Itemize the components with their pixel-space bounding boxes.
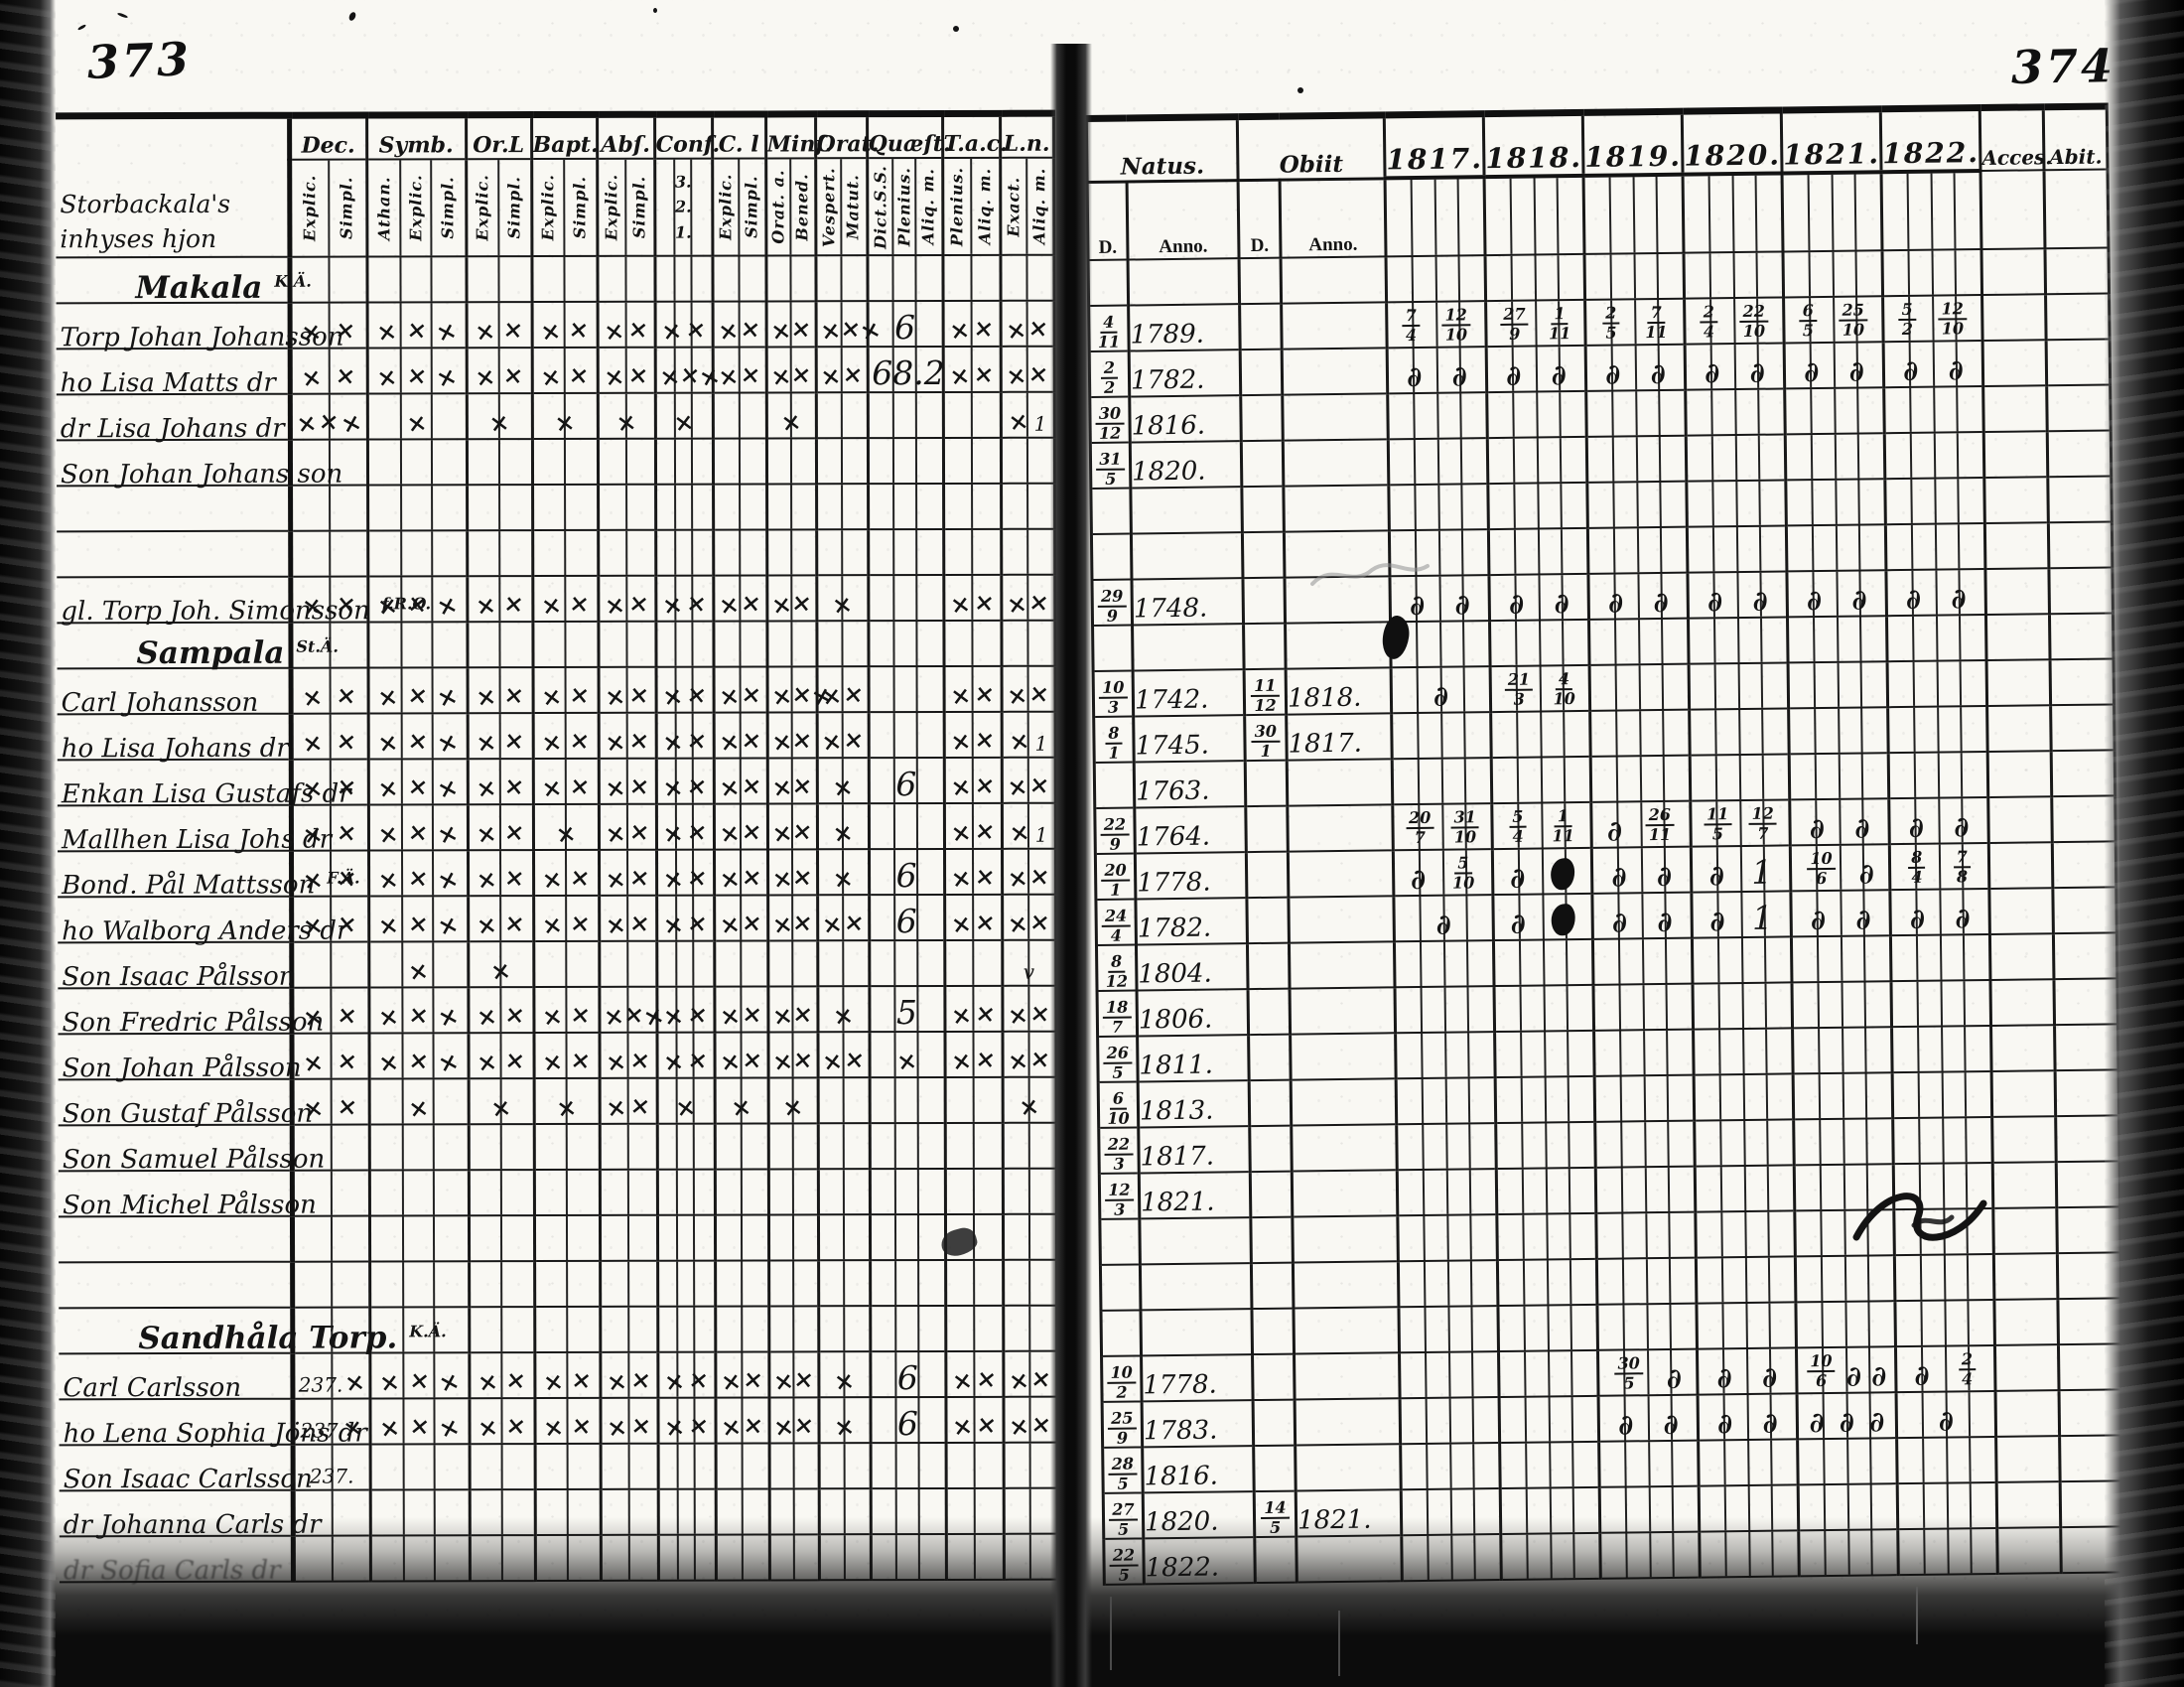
person-name: gl. Torp Joh. Simonssonf.R.O. (57, 595, 288, 627)
examination-mark-cell: ×× (714, 895, 767, 940)
examination-mark-cell: ×× (656, 667, 714, 713)
paper-speck (117, 12, 128, 19)
x-mark: × (301, 364, 324, 391)
communion-mark-cell (1785, 433, 1885, 480)
examination-mark-cell (713, 438, 766, 484)
communion-mark-cell: ∂∂ (1588, 573, 1689, 620)
examination-mark-cell (367, 485, 467, 530)
x-mark: × (791, 590, 813, 616)
examination-mark-cell: × (367, 393, 467, 439)
communion-mark-cell (1596, 1258, 1697, 1305)
examination-mark-cell: ××× (369, 1352, 469, 1398)
x-mark: × (376, 684, 399, 711)
examination-mark-cell: × (817, 758, 869, 803)
natus-day-cell (1100, 1264, 1141, 1310)
paper-speck (347, 11, 356, 22)
examination-mark-cell: ×× (944, 1032, 1002, 1077)
ditto-mark: ∂ (1653, 590, 1668, 615)
ledger-row: Bond. Pål MattssonF.Ä.××××××××××××××××××… (58, 849, 1055, 898)
examination-mark-cell: ×× (944, 986, 1002, 1032)
communion-mark-cell: ∂510 (1393, 849, 1493, 896)
x-mark: × (502, 317, 524, 343)
pen-flourish (1844, 1174, 2003, 1263)
x-mark: × (408, 1048, 430, 1073)
communion-mark-cell (1885, 523, 1985, 570)
ledger-row (57, 484, 1054, 532)
x-mark: × (539, 593, 562, 620)
communion-mark-cell (1491, 711, 1591, 758)
book-edge-left (0, 0, 56, 1687)
x-mark: × (376, 821, 399, 848)
x-mark: × (831, 820, 854, 847)
examination-mark-cell: × (368, 941, 468, 987)
communion-mark-cell (1885, 478, 1985, 524)
examination-mark-cell: ×× (533, 896, 599, 941)
communion-mark-cell: ∂ (1391, 666, 1491, 713)
x-mark: × (336, 820, 357, 846)
column-subheader: 3.2.1. (654, 159, 712, 256)
examination-mark-cell (815, 255, 867, 301)
communion-mark-cell (1488, 528, 1588, 575)
communion-mark-cell: 54111 (1492, 802, 1592, 849)
acces-cell (1981, 248, 2046, 295)
examination-mark-cell (868, 484, 943, 529)
examination-mark-cell (816, 392, 868, 438)
x-mark: × (793, 1366, 815, 1392)
x-mark: × (604, 913, 626, 939)
examination-mark-cell (870, 1123, 945, 1169)
obiit-day-cell (1246, 806, 1289, 853)
year-label: 1820. (1682, 110, 1782, 175)
communion-mark-cell (1394, 940, 1494, 987)
x-mark: × (974, 910, 996, 935)
x-mark: × (604, 730, 626, 757)
examination-mark-cell (868, 392, 943, 438)
natus-year-cell: 1764. (1135, 806, 1247, 853)
examination-mark-cell (765, 255, 815, 301)
examination-mark-cell (768, 1260, 818, 1306)
x-mark: × (718, 912, 741, 938)
examination-mark-cell (945, 1169, 1003, 1214)
x-mark: × (555, 1095, 578, 1122)
column-label: Or.L (466, 115, 531, 160)
examination-mark-cell: ×× (467, 348, 532, 393)
communion-mark-cell: ∂∂ (1685, 343, 1785, 389)
x-mark: × (743, 1367, 764, 1393)
obiit-day-cell (1253, 1354, 1296, 1401)
x-mark: × (376, 867, 399, 894)
x-mark: × (686, 728, 708, 754)
ditto-mark: ∂ (1869, 1409, 1884, 1434)
x-mark: × (628, 865, 650, 891)
book-edge-bottom (0, 1517, 2184, 1687)
name-cell: Son Isaac Carlsson (60, 1445, 293, 1491)
obiit-day-cell (1242, 532, 1285, 579)
obiit-year-cell (1281, 256, 1387, 303)
examination-mark-cell (818, 1169, 870, 1214)
examination-mark-cell (869, 666, 944, 712)
examination-mark-cell: ××× (655, 348, 713, 393)
examination-mark-cell: ×× (468, 850, 533, 896)
examination-mark-cell (943, 529, 1001, 575)
x-mark: × (407, 958, 430, 985)
person-name: ho Lena Sophia Jöns dr (60, 1419, 291, 1450)
examination-mark-cell (818, 1077, 870, 1123)
examination-mark-cell: ××× (290, 393, 367, 439)
examination-mark-cell: × (469, 1078, 534, 1124)
acces-cell (1989, 933, 2054, 980)
examination-mark-cell: ×× (944, 712, 1002, 758)
examination-mark-cell: ×× (1001, 575, 1054, 621)
acces-cell (1987, 751, 2052, 797)
ditto-mark: ∂ (1509, 591, 1524, 616)
anno-sublabel: Anno. (1280, 178, 1386, 257)
communion-mark-cell (1699, 1439, 1799, 1485)
x-mark: × (378, 1415, 401, 1442)
examination-mark-cell: ×× (290, 348, 367, 393)
x-mark: × (336, 683, 357, 709)
examination-mark-cell (1001, 529, 1054, 575)
name-cell: Son Samuel Pålsson (59, 1125, 292, 1172)
obiit-day-cell (1240, 304, 1283, 351)
acces-label: Acces. (1979, 107, 2044, 171)
acces-cell (1995, 1390, 2060, 1437)
examination-mark-cell: ×× (714, 803, 767, 849)
ditto-mark: ∂ (1707, 589, 1722, 614)
examination-mark-cell: ×× (599, 667, 656, 713)
acces-cell (1990, 979, 2055, 1026)
communion-mark-cell (1400, 1351, 1500, 1398)
communion-mark-cell (1791, 935, 1891, 982)
communion-mark-cell (1697, 1302, 1797, 1348)
examination-mark-cell: × (467, 393, 532, 439)
obiit-day-cell (1251, 1217, 1294, 1264)
person-name: Carl Carlsson (59, 1373, 290, 1404)
date-fraction: 81 (1105, 726, 1123, 762)
x-mark: × (687, 1048, 709, 1073)
x-mark: × (502, 362, 524, 388)
number-mark: 237. (299, 1375, 343, 1395)
x-mark: × (503, 682, 525, 708)
subcolumn-label: Aliq. m. (1031, 168, 1047, 244)
x-mark: × (553, 410, 576, 437)
natus-day-cell: 81 (1094, 716, 1135, 762)
x-mark: × (476, 1004, 498, 1031)
examination-mark-cell (942, 255, 1000, 301)
x-mark: × (377, 1369, 400, 1396)
x-mark: × (407, 911, 429, 936)
date-fraction: 812 (1105, 954, 1128, 990)
examination-mark-cell: ×× (767, 1032, 817, 1077)
x-mark: × (741, 728, 762, 754)
person-name: Son Samuel Pålsson (59, 1145, 290, 1176)
abit-label: Abit. (2043, 106, 2108, 170)
examination-mark-cell (598, 622, 655, 667)
examination-mark-cell: ×× (291, 1033, 368, 1078)
x-mark: × (628, 591, 650, 617)
name-cell: Carl Johansson (58, 668, 291, 715)
x-mark: × (661, 729, 684, 756)
examination-mark-cell: × (817, 986, 869, 1032)
communion-mark-cell (1785, 387, 1885, 434)
communion-mark-cell (1887, 660, 1987, 707)
examination-mark-cell (469, 1170, 534, 1215)
village-heading: SampalaSt.Ä. (57, 635, 288, 672)
examination-mark-cell: × (715, 1077, 768, 1123)
communion-mark-cell (1397, 1123, 1497, 1170)
examination-mark-cell: ×× (656, 804, 714, 850)
communion-mark-cell (1594, 1075, 1695, 1122)
subcolumn-label: Simpl. (572, 176, 588, 238)
x-mark: × (660, 318, 683, 345)
number-mark: 1 (1034, 414, 1047, 434)
x-mark: × (719, 1003, 742, 1030)
x-mark: × (950, 1049, 973, 1075)
person-name: Son Johan Pålsson (59, 1054, 290, 1084)
communion-mark-cell (1786, 524, 1886, 571)
x-mark: × (685, 317, 707, 343)
examination-mark-cell (290, 530, 367, 576)
x-mark: × (1006, 865, 1028, 892)
examination-mark-cell (291, 941, 368, 987)
ledger-row: dr Lisa Johans dr××××××××××1 (57, 392, 1054, 441)
x-mark: × (1006, 682, 1028, 709)
examination-mark-cell (600, 1124, 657, 1170)
name-cell: Son Johan Johans son (57, 440, 290, 487)
examination-mark-cell (598, 530, 655, 576)
x-mark: × (406, 362, 428, 388)
communion-mark-cell (1495, 1031, 1595, 1077)
acces-cell (1994, 1299, 2059, 1345)
examination-mark-cell (600, 1170, 657, 1215)
day-sublabel: D. (1238, 180, 1281, 259)
communion-mark-cell (1891, 980, 1991, 1027)
x-mark: × (568, 317, 590, 343)
subcolumn-label: Explic. (604, 174, 619, 240)
communion-mark-cell (1491, 757, 1591, 803)
communion-mark-cell: ∂∂ (1791, 890, 1891, 936)
x-mark: × (405, 410, 428, 437)
examination-mark-cell (944, 940, 1002, 986)
x-mark: × (606, 1415, 628, 1442)
date-fraction: 1112 (1251, 678, 1280, 714)
x-mark: × (950, 1368, 973, 1395)
date-fraction: 279 (1500, 307, 1529, 343)
x-mark: × (505, 1413, 527, 1439)
examination-mark-cell (367, 439, 467, 485)
examination-mark-cell (1003, 1214, 1056, 1260)
natus-year-cell (1133, 624, 1245, 670)
date-fraction: 259 (1108, 1411, 1137, 1447)
communion-mark-cell: ∂∂ (1486, 346, 1586, 392)
communion-mark-cell (1594, 1030, 1695, 1076)
examination-mark-cell (467, 530, 532, 576)
communion-mark-cell (1597, 1304, 1698, 1350)
natus-year-cell: 1778. (1142, 1354, 1254, 1401)
ditto-mark: ∂ (1667, 1366, 1682, 1391)
x-mark: × (976, 1412, 998, 1438)
x-mark: × (571, 1413, 593, 1439)
communion-mark-cell (1389, 484, 1489, 530)
x-mark: × (1028, 773, 1050, 798)
x-mark: × (568, 362, 590, 388)
examination-mark-cell: ×× (715, 1351, 768, 1397)
ditto-mark: ∂ (1709, 863, 1724, 888)
x-mark: × (569, 682, 591, 708)
x-mark: × (790, 316, 812, 342)
examination-mark-cell (467, 485, 532, 530)
x-mark: × (540, 913, 563, 939)
examination-mark-cell: ×× (714, 849, 767, 895)
examination-mark-cell (766, 529, 816, 575)
examination-mark-cell (599, 941, 656, 987)
faint-scribble (1306, 552, 1435, 596)
x-mark: × (489, 958, 512, 985)
column-label: Dec. (289, 115, 366, 160)
examination-mark-cell (369, 1215, 469, 1261)
examination-mark-cell (868, 621, 943, 666)
person-name: Son Michel Pålsson (59, 1191, 290, 1221)
ledger-row: Mallhen Lisa Johs dr××××××××××××××××××××… (58, 803, 1055, 852)
column-subheader: Orat. a.Bened. (765, 158, 815, 255)
examination-mark-cell: ×× (767, 986, 817, 1032)
examination-mark-cell (469, 1261, 534, 1307)
x-mark: × (948, 318, 971, 345)
year-subcolumns (1583, 175, 1684, 254)
x-mark: × (570, 1048, 592, 1073)
examination-mark-cell: ×× (599, 759, 656, 804)
communion-mark-cell (1499, 1350, 1599, 1397)
x-mark: × (974, 773, 996, 798)
ditto-mark: ∂ (1511, 911, 1526, 935)
obiit-day-cell (1248, 989, 1291, 1036)
conf-grade-label: 1. (675, 219, 692, 245)
communion-mark-cell (1589, 664, 1690, 711)
natus-day-cell (1093, 625, 1134, 670)
ditto-mark: ∂ (1657, 910, 1672, 934)
x-mark: × (831, 592, 854, 619)
examination-mark-cell (533, 941, 599, 987)
subcolumn-label: Explic. (302, 175, 318, 241)
communion-mark-cell (1789, 753, 1889, 799)
communion-mark-cell (1497, 1213, 1597, 1260)
name-cell: Son Gustaf Pålsson (59, 1079, 292, 1126)
x-mark: × (975, 1047, 997, 1072)
examination-mark-cell (715, 1123, 768, 1169)
x-mark: × (474, 593, 496, 620)
communion-mark-cell (1892, 1026, 1992, 1072)
date-fraction: 229 (1101, 817, 1130, 853)
examination-mark-cell: ×× (656, 850, 714, 896)
communion-mark-cell: ∂∂ (1688, 571, 1788, 618)
communion-mark-cell (1793, 1027, 1893, 1073)
x-mark: × (628, 819, 650, 845)
examination-mark-cell (366, 256, 466, 302)
page-number-left: 373 (86, 32, 193, 93)
examination-mark-cell (769, 1443, 819, 1488)
communion-mark-cell (1788, 616, 1888, 662)
examination-mark-cell: ××× (368, 850, 468, 896)
x-mark: × (504, 1002, 526, 1028)
x-mark: × (569, 865, 591, 891)
natus-day-cell: 223 (1099, 1127, 1140, 1173)
x-mark: × (376, 730, 399, 757)
natus-year-cell: 1811. (1138, 1035, 1250, 1081)
examination-mark-cell (870, 1260, 945, 1306)
ledger-row: Enkan Lisa Gustafs dr××××××××××××××××××6… (58, 758, 1055, 806)
ditto-mark: ∂ (1906, 587, 1921, 612)
communion-mark-cell (1590, 710, 1691, 757)
obiit-year-cell: 1817. (1287, 713, 1393, 760)
communion-mark-cell (1689, 662, 1789, 709)
examination-mark-cell: ×× (533, 667, 599, 713)
communion-mark-cell (1388, 392, 1488, 439)
x-mark: × (554, 821, 577, 848)
x-mark: × (1029, 1047, 1051, 1072)
year-label: 1818. (1483, 112, 1583, 177)
subcolumn-label: Matut. (845, 174, 861, 239)
ditto-mark: ∂ (1611, 864, 1626, 889)
x-mark: × (569, 773, 591, 799)
date-fraction: 2611 (1646, 807, 1675, 843)
obiit-day-cell (1243, 578, 1286, 625)
column-label: Conf. (654, 114, 712, 159)
x-mark: × (949, 912, 972, 938)
x-mark: × (793, 1412, 815, 1438)
x-mark: × (741, 591, 762, 617)
x-mark: × (407, 865, 429, 891)
examination-mark-cell (870, 1306, 945, 1351)
examination-mark-cell (945, 1306, 1003, 1351)
ditto-mark: ∂ (1809, 1410, 1824, 1435)
number-mark: 1 (1752, 904, 1773, 933)
x-mark: × (1027, 316, 1049, 342)
obiit-year-cell (1283, 439, 1389, 486)
communion-mark-cell (1587, 482, 1688, 528)
examination-mark-cell (598, 485, 655, 530)
examination-mark-cell (655, 439, 713, 485)
x-mark: × (662, 1049, 685, 1075)
ditto-mark: ∂ (1763, 1410, 1778, 1435)
subcolumn-label: Explic. (540, 174, 556, 240)
x-mark: × (658, 363, 681, 390)
x-mark: × (686, 819, 708, 845)
x-mark: × (976, 1366, 998, 1392)
x-mark: × (741, 682, 762, 708)
x-mark: × (477, 1369, 499, 1396)
ditto-mark: ∂ (1552, 362, 1567, 387)
x-mark: × (337, 1094, 358, 1120)
examination-mark-cell (766, 438, 816, 484)
ditto-mark: ∂ (1607, 818, 1622, 843)
x-mark: × (436, 1049, 462, 1077)
x-mark: × (505, 1367, 527, 1393)
examination-mark-cell: ×× (714, 1032, 767, 1077)
x-mark: × (686, 682, 708, 708)
x-mark: × (436, 912, 462, 940)
ledger-row: MakalaK.Ä. (56, 255, 1053, 304)
examination-mark-cell: ×× (714, 758, 767, 803)
person-name: Mallhen Lisa Johs dr (58, 825, 289, 856)
x-mark: × (435, 774, 461, 803)
communion-mark-cell (1694, 1073, 1794, 1120)
subcolumn-label: Vespert. (821, 167, 837, 247)
communion-mark-cell: ∂∂ (1790, 798, 1890, 845)
date-fraction: 410 (1553, 671, 1575, 707)
acces-cell (1986, 659, 2051, 706)
ledger-row: Son Isaac Carlsson237. (60, 1443, 1057, 1491)
examination-mark-cell (1003, 1169, 1056, 1214)
